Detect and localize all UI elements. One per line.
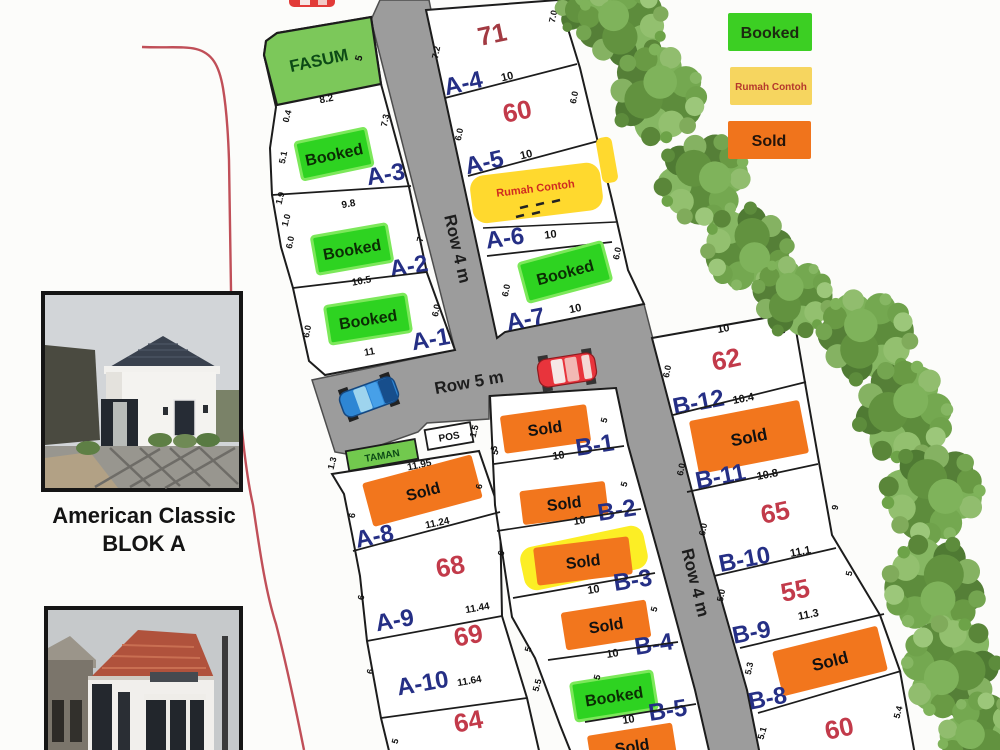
svg-text:60: 60 xyxy=(500,94,535,129)
svg-text:Rumah Contoh: Rumah Contoh xyxy=(735,82,807,93)
svg-text:10: 10 xyxy=(568,302,582,316)
svg-text:10: 10 xyxy=(544,228,558,242)
svg-text:62: 62 xyxy=(709,342,744,377)
svg-text:65: 65 xyxy=(758,495,793,530)
svg-text:Booked: Booked xyxy=(741,25,800,42)
svg-text:10: 10 xyxy=(573,514,587,528)
svg-text:10: 10 xyxy=(606,647,620,661)
svg-text:10: 10 xyxy=(716,322,730,336)
svg-text:68: 68 xyxy=(433,549,467,584)
svg-text:71: 71 xyxy=(475,17,510,52)
svg-text:60: 60 xyxy=(822,711,857,746)
svg-text:Sold: Sold xyxy=(752,133,787,150)
svg-text:American Classic: American Classic xyxy=(52,503,235,528)
svg-text:55: 55 xyxy=(778,573,813,608)
svg-text:BLOK A: BLOK A xyxy=(102,531,186,556)
svg-text:69: 69 xyxy=(451,618,485,653)
svg-text:A-6: A-6 xyxy=(484,223,526,255)
